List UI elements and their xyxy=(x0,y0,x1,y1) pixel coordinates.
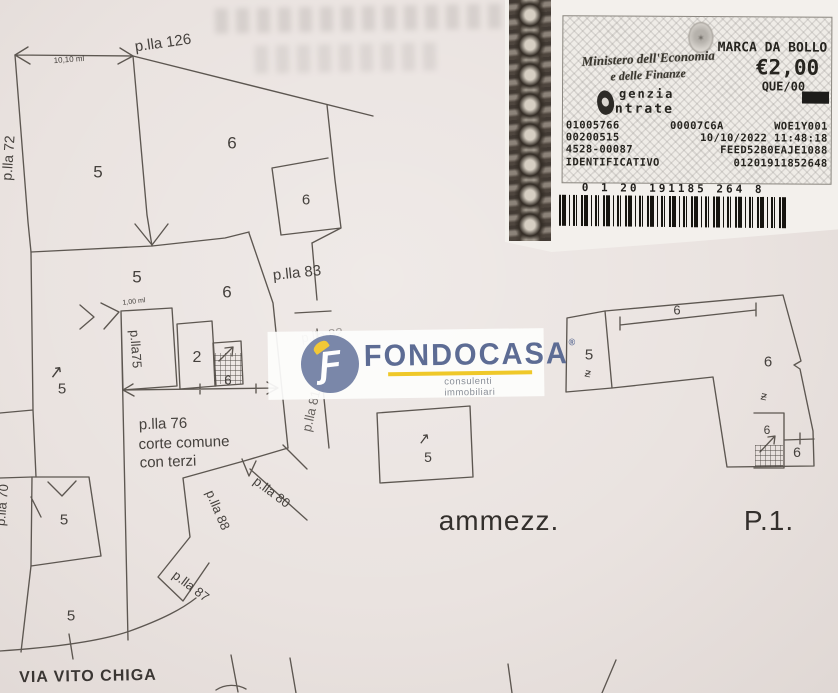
upper-room-walls xyxy=(133,56,373,246)
scanned-cadastral-document: p.lla 12610,10 mlp.lla 7256566p.lla 83p.… xyxy=(0,0,838,693)
stamp-code: 00200515 xyxy=(566,131,620,143)
stamp-sheet-rope-edge xyxy=(509,0,551,241)
stamp-code: WOE1Y001 xyxy=(774,120,828,132)
row-divider xyxy=(31,224,249,252)
right-plan-outline xyxy=(566,295,814,467)
stamp-label: IDENTIFICATIVO xyxy=(566,156,660,168)
stamp-identificativo-row: IDENTIFICATIVO 01201911852648 xyxy=(566,156,828,169)
room-5d: 5 xyxy=(60,513,68,528)
barcode-digits: 0 1 20 191185 264 8 xyxy=(556,181,790,196)
stamp-code: 01005766 xyxy=(566,119,620,131)
road-curve xyxy=(0,598,196,651)
room-6b: 6 xyxy=(222,284,231,301)
north-arrow-b: ↗ xyxy=(417,431,432,448)
stamp-black-mark xyxy=(802,92,829,104)
parcel-76: p.lla 76 xyxy=(139,416,188,433)
room-5a: 5 xyxy=(93,164,102,181)
room-6e: 6 xyxy=(764,355,772,370)
street-name: VIA VITO CHIGA xyxy=(19,667,157,687)
stamp-code: 00007C6A xyxy=(670,120,724,132)
first-floor-caption: P.1. xyxy=(744,505,794,537)
stamp-code: 4528-00087 xyxy=(566,143,633,155)
room-6a: 6 xyxy=(227,135,236,152)
agenzia-line2: ntrate xyxy=(615,102,674,117)
room-2a: 2 xyxy=(193,350,202,366)
brand-name: FONDOCASA® xyxy=(364,337,578,375)
parcel-75: p.lla75 xyxy=(128,329,144,368)
room-6f: 6 xyxy=(793,445,801,459)
stamp-code-row3: 4528-00087 FEED52B0EAJE1088 xyxy=(566,143,828,156)
room-5g: 5 xyxy=(585,348,593,363)
brand-text: FONDOCASA xyxy=(364,337,569,373)
agenzia-entrate-icon xyxy=(594,89,617,117)
stairs-right-hatch xyxy=(755,445,783,467)
registered-mark: ® xyxy=(569,337,578,348)
fondocasa-logo-icon: Ƒ xyxy=(301,335,360,394)
stray-marks xyxy=(216,655,616,693)
room-5e: 5 xyxy=(67,609,75,624)
court-common-line: corte comune xyxy=(138,434,229,452)
court-terzi-line: con terzi xyxy=(139,454,196,471)
logo-letter: Ƒ xyxy=(317,345,343,383)
stamp-office-code: QUE/00 xyxy=(762,79,805,93)
brand-tagline: consulenti immobiliari xyxy=(444,375,544,398)
stamp-amount: €2,00 xyxy=(756,55,819,79)
parcel-72: p.lla 72 xyxy=(0,135,17,181)
room-6d: 6 xyxy=(224,374,231,387)
stairs-6: 6 xyxy=(764,424,771,436)
agenzia-line1: genzia xyxy=(619,87,674,101)
stamp-datetime: 10/10/2022 11:48:18 xyxy=(700,132,828,145)
fondocasa-watermark: Ƒ FONDOCASA® consulenti immobiliari xyxy=(268,328,545,400)
room-5b: 5 xyxy=(132,269,141,286)
stamp-barcode: 0 1 20 191185 264 8 xyxy=(556,181,790,228)
corner-marks xyxy=(80,303,119,329)
room-6c: 6 xyxy=(302,193,310,208)
stamp-title: MARCA DA BOLLO xyxy=(697,40,827,56)
court-dimension-line xyxy=(123,382,278,396)
mezzanine-caption: ammezz. xyxy=(439,505,560,537)
strip-room-6: 6 xyxy=(673,304,680,317)
stamp-id-number: 01201911852648 xyxy=(734,157,828,169)
left-outer-walls xyxy=(0,55,36,478)
barcode-bars xyxy=(559,195,787,228)
room-5f: 5 xyxy=(424,450,432,464)
room-5c: 5 xyxy=(58,382,66,397)
north-arrow-a: ↗ xyxy=(48,363,64,382)
stamp-code: FEED52B0EAJE1088 xyxy=(720,144,828,157)
marca-da-bollo-stamp: ✶ Ministero dell'Economia e delle Finanz… xyxy=(562,15,833,184)
